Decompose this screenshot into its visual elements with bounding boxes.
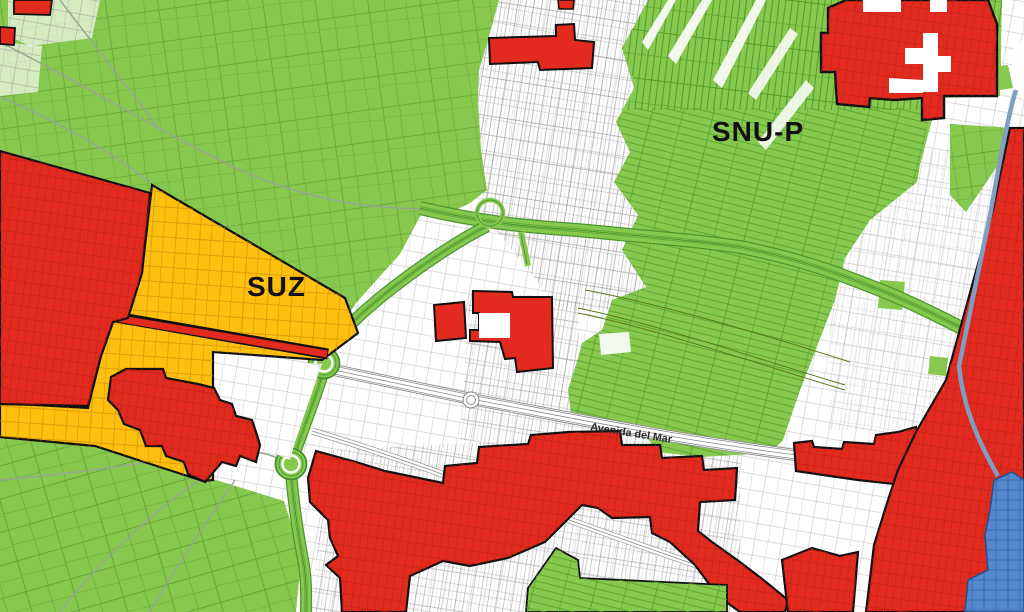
svg-text:SNU-P: SNU-P — [712, 116, 804, 147]
svg-text:SUZ: SUZ — [247, 271, 306, 302]
